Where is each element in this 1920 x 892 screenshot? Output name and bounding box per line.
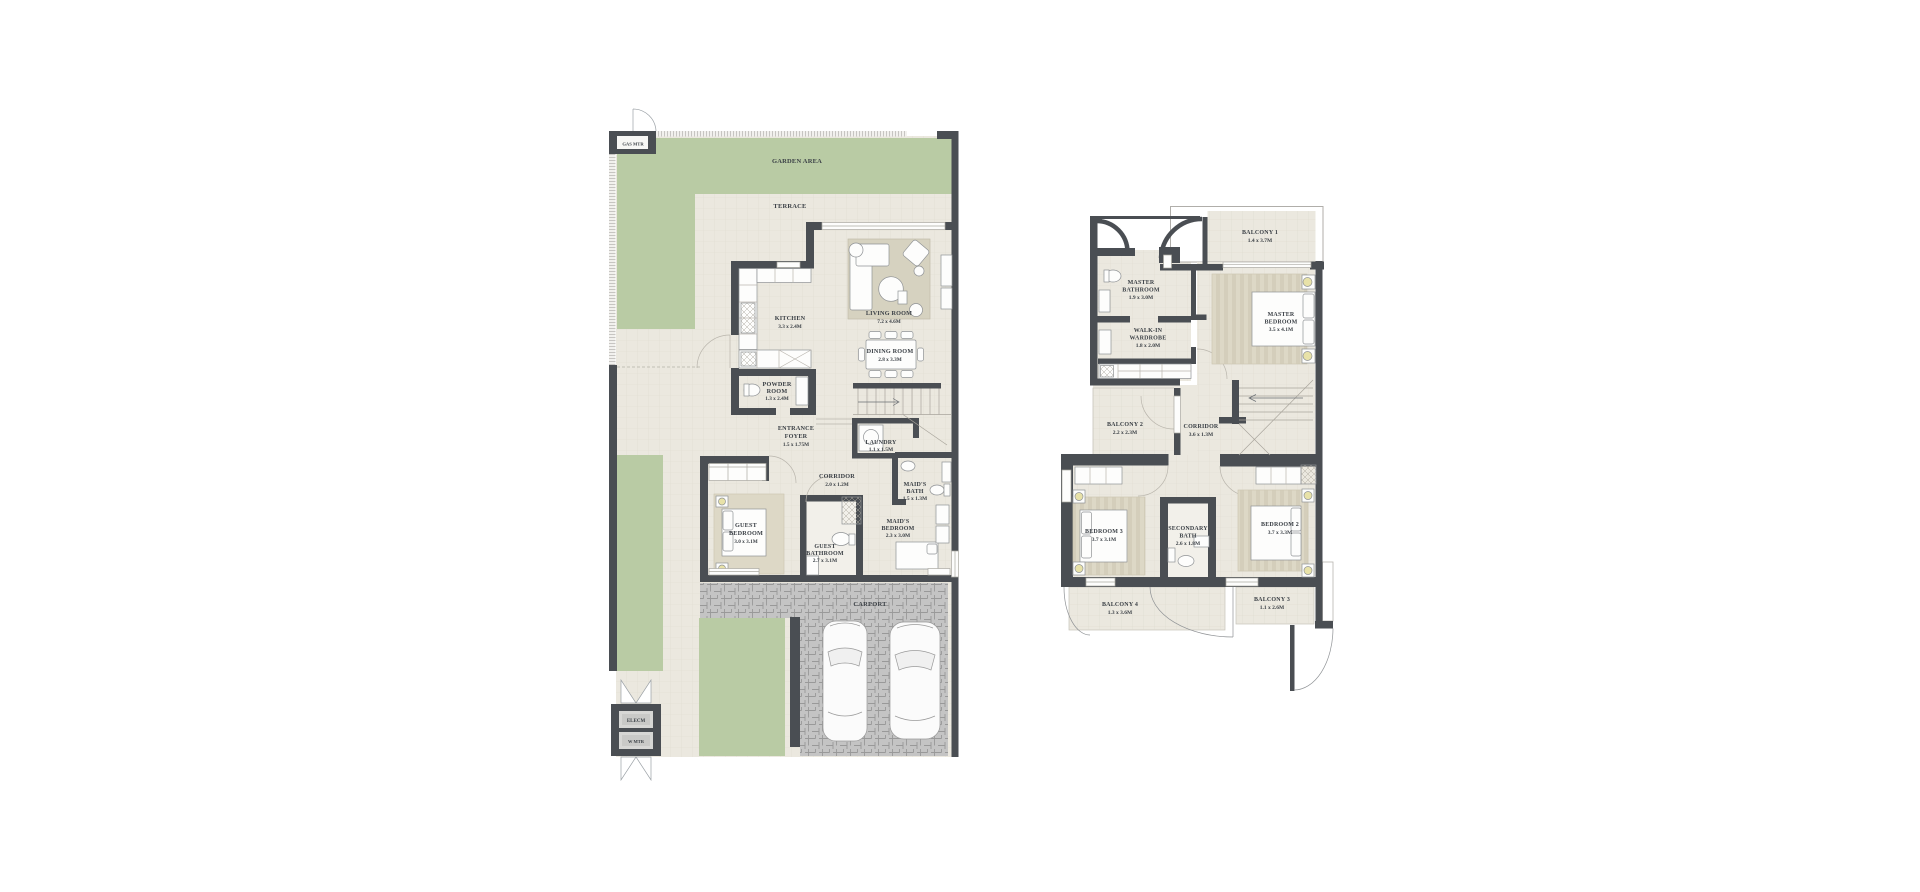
svg-text:SECONDARY: SECONDARY	[1168, 526, 1208, 532]
svg-text:2.3 x 3.0M: 2.3 x 3.0M	[886, 533, 911, 539]
svg-text:3.0 x 3.1M: 3.0 x 3.1M	[734, 539, 758, 545]
svg-text:BALCONY 3: BALCONY 3	[1254, 597, 1290, 603]
svg-text:BEDROOM 3: BEDROOM 3	[1085, 529, 1123, 535]
svg-text:BEDROOM 2: BEDROOM 2	[1261, 522, 1299, 528]
svg-text:KITCHEN: KITCHEN	[775, 315, 806, 322]
svg-text:BEDROOM: BEDROOM	[1264, 320, 1297, 326]
svg-text:1.3 x 3.6M: 1.3 x 3.6M	[1108, 610, 1133, 616]
svg-text:TERRACE: TERRACE	[773, 203, 806, 210]
svg-text:3.3 x 2.4M: 3.3 x 2.4M	[778, 324, 802, 330]
svg-text:3.6 x 1.3M: 3.6 x 1.3M	[1189, 432, 1214, 438]
svg-text:1.1 x 2.6M: 1.1 x 2.6M	[1260, 605, 1285, 611]
svg-text:3.7 x 3.1M: 3.7 x 3.1M	[1092, 537, 1117, 543]
svg-text:CARPORT: CARPORT	[853, 601, 887, 608]
svg-text:MASTER: MASTER	[1268, 312, 1295, 318]
svg-text:7.2 x 4.6M: 7.2 x 4.6M	[877, 319, 901, 325]
svg-text:LIVING ROOM: LIVING ROOM	[866, 310, 912, 317]
svg-text:1.4 x 3.7M: 1.4 x 3.7M	[1248, 238, 1273, 244]
svg-text:1.3 x 2.4M: 1.3 x 2.4M	[765, 396, 789, 402]
svg-text:CORRIDOR: CORRIDOR	[1184, 424, 1219, 430]
svg-text:BATH: BATH	[906, 489, 923, 495]
svg-text:BALCONY 1: BALCONY 1	[1242, 230, 1278, 236]
svg-text:WALK-IN: WALK-IN	[1134, 328, 1163, 334]
svg-text:DINING ROOM: DINING ROOM	[867, 348, 914, 355]
svg-text:MASTER: MASTER	[1128, 280, 1155, 286]
svg-text:1.5 x 1.3M: 1.5 x 1.3M	[903, 496, 928, 502]
svg-text:W MTR: W MTR	[628, 739, 645, 744]
svg-text:POWDER: POWDER	[762, 381, 791, 388]
svg-text:2.8 x 3.3M: 2.8 x 3.3M	[878, 357, 902, 363]
svg-text:2.2 x 2.3M: 2.2 x 2.3M	[1113, 430, 1138, 436]
svg-text:GARDEN AREA: GARDEN AREA	[772, 158, 822, 165]
svg-text:BALCONY 2: BALCONY 2	[1107, 422, 1143, 428]
svg-text:FOYER: FOYER	[785, 433, 808, 440]
svg-text:BATHROOM: BATHROOM	[806, 551, 844, 557]
svg-text:2.0 x 1.2M: 2.0 x 1.2M	[825, 482, 849, 488]
svg-text:MAID'S: MAID'S	[887, 519, 910, 525]
svg-text:2.6 x 1.8M: 2.6 x 1.8M	[1176, 541, 1201, 547]
svg-text:BEDROOM: BEDROOM	[729, 530, 763, 537]
svg-text:ROOM: ROOM	[767, 388, 788, 395]
svg-text:WARDROBE: WARDROBE	[1130, 336, 1167, 342]
svg-text:ELECM: ELECM	[627, 719, 646, 724]
svg-text:LAUNDRY: LAUNDRY	[865, 440, 897, 446]
svg-text:1.8 x 2.0M: 1.8 x 2.0M	[1136, 343, 1161, 349]
svg-text:BATHROOM: BATHROOM	[1122, 288, 1160, 294]
svg-text:3.5 x 4.1M: 3.5 x 4.1M	[1269, 327, 1294, 333]
svg-text:BEDROOM: BEDROOM	[881, 526, 914, 532]
svg-text:GUEST: GUEST	[814, 544, 835, 550]
svg-text:1.9 x 3.0M: 1.9 x 3.0M	[1129, 295, 1154, 301]
svg-text:MAID'S: MAID'S	[904, 482, 927, 488]
svg-text:2.7 x 3.1M: 2.7 x 3.1M	[813, 558, 838, 564]
svg-text:BATH: BATH	[1179, 534, 1196, 540]
svg-text:1.5 x 1.75M: 1.5 x 1.75M	[783, 442, 809, 448]
svg-text:3.7 x 3.3M: 3.7 x 3.3M	[1268, 530, 1293, 536]
svg-text:GAS MTR: GAS MTR	[622, 142, 644, 147]
svg-text:CORRIDOR: CORRIDOR	[819, 473, 855, 480]
svg-text:GUEST: GUEST	[735, 522, 758, 529]
svg-text:ENTRANCE: ENTRANCE	[778, 425, 814, 432]
svg-text:1.1 x 1.5M: 1.1 x 1.5M	[869, 447, 894, 453]
svg-text:BALCONY 4: BALCONY 4	[1102, 602, 1138, 608]
